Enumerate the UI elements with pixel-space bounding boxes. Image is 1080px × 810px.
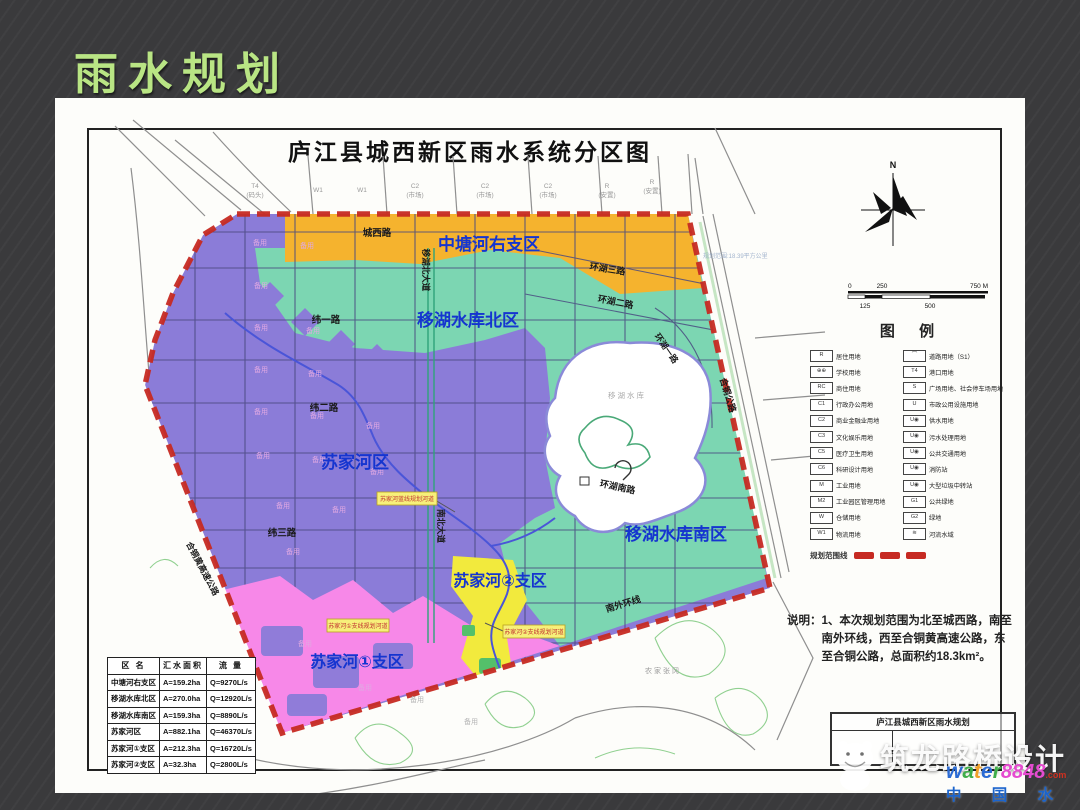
legend-swatch: ⊕⊕ xyxy=(810,366,833,378)
cell-flow: Q=12920L/s xyxy=(207,691,256,708)
reserved-outside-labels: 备用备用 xyxy=(410,695,478,726)
cell-zone-name: 移湖水库北区 xyxy=(108,691,160,708)
callout-branch1: 苏家河①支线规划河道 xyxy=(328,622,387,630)
legend-item: W 仓储用地 xyxy=(810,510,898,526)
cell-zone-name: 苏家河①支区 xyxy=(108,740,160,757)
legend-item: G1 公共绿地 xyxy=(903,494,1013,510)
legend-item: W1 物流用地 xyxy=(810,526,898,542)
note-block: 说明： 1、本次规划范围为北至城西路，南至南外环线，西至合铜黄高速公路，东至合铜… xyxy=(787,613,1015,666)
col-zone-name: 区 名 xyxy=(108,658,160,675)
legend-item: U◉ 大型垃圾中转站 xyxy=(903,478,1013,494)
legend-item-label: 市政公用设施用地 xyxy=(929,400,979,409)
legend-item: U 市政公用设施用地 xyxy=(903,397,1013,413)
svg-text:备用: 备用 xyxy=(298,639,312,648)
legend-item-label: 文化娱乐用地 xyxy=(836,433,873,442)
legend-item-label: 医疗卫生用地 xyxy=(836,449,873,458)
legend-range-line: 规划范围线 xyxy=(810,550,1014,561)
legend-item: RC 商住用地 xyxy=(810,380,898,396)
road-yihubei-ave: 移湖北大道 xyxy=(421,249,431,292)
legend-item: ⌒ 道路用地（S1） xyxy=(903,348,1013,364)
legend-item: T4 港口用地 xyxy=(903,364,1013,380)
brand-letter: e xyxy=(981,760,993,783)
legend-swatch: G1 xyxy=(903,496,926,508)
legend-swatch: ≋ xyxy=(903,528,926,540)
legend-swatch: W xyxy=(810,512,833,524)
svg-text:备用: 备用 xyxy=(276,501,290,510)
table-row: 苏家河②支区 A=32.3ha Q=2800L/s xyxy=(108,757,256,774)
road-wei3: 纬三路 xyxy=(268,527,297,539)
zone-label-yihu-south: 移湖水库南区 xyxy=(625,524,727,544)
legend-item: C6 科研设计用地 xyxy=(810,461,898,477)
cell-zone-name: 苏家河②支区 xyxy=(108,757,160,774)
huanhunan-marker xyxy=(580,477,589,485)
legend-swatch: U◉ xyxy=(903,415,926,427)
legend-swatch: S xyxy=(903,382,926,394)
legend-item-label: 消防站 xyxy=(929,465,948,474)
legend-swatch: C1 xyxy=(810,399,833,411)
svg-text:750 M: 750 M xyxy=(970,283,988,290)
range-line-label: 规划范围线 xyxy=(810,550,848,561)
note-text: 1、本次规划范围为北至城西路，南至南外环线，西至合铜黄高速公路，东至合铜公路，总… xyxy=(822,613,1016,666)
svg-text:(码头): (码头) xyxy=(246,190,263,199)
legend-item-label: 行政办公用地 xyxy=(836,400,873,409)
svg-text:(市场): (市场) xyxy=(406,190,423,199)
legend-item: C3 文化娱乐用地 xyxy=(810,429,898,445)
village-label: 农家张冈 xyxy=(645,666,681,675)
svg-text:备用: 备用 xyxy=(358,683,372,692)
legend: 图 例 R 居住用地 ⊕⊕ 学校用地 RC 商住用地 C1 行政办公用地 C2 … xyxy=(810,320,1014,561)
legend-item: M 工业用地 xyxy=(810,478,898,494)
legend-item-label: 居住用地 xyxy=(836,352,861,361)
table-row: 苏家河①支区 A=212.3ha Q=16720L/s xyxy=(108,740,256,757)
svg-text:备用: 备用 xyxy=(464,717,478,726)
zone-label-zhongtang: 中塘河右支区 xyxy=(438,234,540,254)
brand-letter: t xyxy=(974,760,981,783)
slide: 雨水规划 庐江县城西新区雨水系统分区图 xyxy=(0,0,1080,810)
svg-text:备用: 备用 xyxy=(253,238,267,247)
legend-swatch: M2 xyxy=(810,496,833,508)
legend-swatch: U xyxy=(903,399,926,411)
table-row: 移湖水库南区 A=159.3ha Q=8890L/s xyxy=(108,707,256,724)
zone-label-sujiahe1: 苏家河①支区 xyxy=(310,652,404,671)
legend-swatch: U◉ xyxy=(903,447,926,459)
svg-text:250: 250 xyxy=(877,283,888,290)
legend-item-label: 商住用地 xyxy=(836,384,861,393)
legend-item: C2 商业金融业用地 xyxy=(810,413,898,429)
legend-item: U◉ 消防站 xyxy=(903,461,1013,477)
cell-flow: Q=8890L/s xyxy=(207,707,256,724)
cell-flow: Q=9270L/s xyxy=(207,674,256,691)
road-wei1: 纬一路 xyxy=(312,314,341,326)
svg-text:R: R xyxy=(650,179,655,186)
cell-flow: Q=46370L/s xyxy=(207,724,256,741)
brand-dotcom: .com xyxy=(1045,770,1066,780)
legend-item-label: 大型垃圾中转站 xyxy=(929,481,972,490)
svg-text:W1: W1 xyxy=(357,187,367,194)
legend-swatch: W1 xyxy=(810,528,833,540)
legend-item: U◉ 污水处理用地 xyxy=(903,429,1013,445)
svg-text:备用: 备用 xyxy=(254,281,268,290)
zone-label-sujiahe2: 苏家河②支区 xyxy=(453,571,547,590)
lake: 移湖水库 xyxy=(545,342,711,532)
legend-item-label: 港口用地 xyxy=(929,368,954,377)
road-nanbei-ave: 南北大道 xyxy=(436,509,446,544)
table-row: 移湖水库北区 A=270.0ha Q=12920L/s xyxy=(108,691,256,708)
map-title: 庐江县城西新区雨水系统分区图 xyxy=(288,139,652,165)
svg-text:备用: 备用 xyxy=(254,407,268,416)
legend-swatch: RC xyxy=(810,382,833,394)
legend-item-label: 公共绿地 xyxy=(929,497,954,506)
col-flow: 流 量 xyxy=(207,658,256,675)
legend-item: R 居住用地 xyxy=(810,348,898,364)
legend-item: C5 医疗卫生用地 xyxy=(810,445,898,461)
legend-item: S 广场用地、社会停车场用地 xyxy=(903,380,1013,396)
svg-text:(市场): (市场) xyxy=(539,190,556,199)
range-note: 规划范围:18.39平方公里 xyxy=(703,252,768,260)
legend-item-label: 商业金融业用地 xyxy=(836,416,879,425)
table-row: 苏家河区 A=882.1ha Q=46370L/s xyxy=(108,724,256,741)
zone-label-sujiahe: 苏家河区 xyxy=(321,452,389,472)
svg-text:(安置): (安置) xyxy=(643,186,660,195)
legend-item-label: 公共交通用地 xyxy=(929,449,966,458)
svg-text:备用: 备用 xyxy=(306,326,320,335)
cell-zone-name: 中塘河右支区 xyxy=(108,674,160,691)
table-header-row: 区 名 汇水面积 流 量 xyxy=(108,658,256,675)
legend-swatch: U◉ xyxy=(903,463,926,475)
legend-swatch: C3 xyxy=(810,431,833,443)
legend-item-label: 物流用地 xyxy=(836,530,861,539)
legend-swatch: C6 xyxy=(810,463,833,475)
svg-text:备用: 备用 xyxy=(410,695,424,704)
note-label: 说明： xyxy=(787,613,822,666)
svg-text:备用: 备用 xyxy=(300,241,314,250)
legend-item-label: 科研设计用地 xyxy=(836,465,873,474)
callout-branch2: 苏家河②支线规划河道 xyxy=(504,628,563,636)
legend-item: C1 行政办公用地 xyxy=(810,397,898,413)
legend-item-label: 工业用地 xyxy=(836,481,861,490)
legend-item-label: 广场用地、社会停车场用地 xyxy=(929,384,1003,393)
cell-area: A=159.3ha xyxy=(160,707,207,724)
brand-number: 8848 xyxy=(1001,761,1046,783)
red-dash-icon xyxy=(880,552,900,559)
svg-text:备用: 备用 xyxy=(256,451,270,460)
svg-text:备用: 备用 xyxy=(286,547,300,556)
cell-zone-name: 苏家河区 xyxy=(108,724,160,741)
red-dash-icon xyxy=(906,552,926,559)
legend-left-column: R 居住用地 ⊕⊕ 学校用地 RC 商住用地 C1 行政办公用地 C2 商业金融… xyxy=(810,348,898,542)
svg-text:C2: C2 xyxy=(544,183,553,190)
legend-item-label: 污水处理用地 xyxy=(929,433,966,442)
watermark-cn: 中 国 水 业 网 xyxy=(946,783,1080,805)
road-wei2: 纬二路 xyxy=(310,402,339,414)
svg-text:(安置): (安置) xyxy=(598,190,615,199)
legend-item-label: 仓储用地 xyxy=(836,513,861,522)
cell-area: A=270.0ha xyxy=(160,691,207,708)
svg-text:W1: W1 xyxy=(313,187,323,194)
road-chengxi: 城西路 xyxy=(363,227,392,239)
table-row: 中塘河右支区 A=159.2ha Q=9270L/s xyxy=(108,674,256,691)
svg-text:备用: 备用 xyxy=(254,323,268,332)
drawing-title: 庐江县城西新区雨水规划 xyxy=(832,714,1014,731)
legend-swatch: ⌒ xyxy=(903,350,926,362)
legend-swatch: T4 xyxy=(903,366,926,378)
cell-area: A=32.3ha xyxy=(160,757,207,774)
legend-title: 图 例 xyxy=(810,320,1014,341)
cell-area: A=882.1ha xyxy=(160,724,207,741)
callout-blue-line: 苏家河蓝线规划河道 xyxy=(380,495,434,503)
legend-swatch: U◉ xyxy=(903,480,926,492)
legend-item-label: 绿地 xyxy=(929,513,941,522)
legend-swatch: G2 xyxy=(903,512,926,524)
cell-zone-name: 移湖水库南区 xyxy=(108,707,160,724)
svg-text:备用: 备用 xyxy=(332,505,346,514)
north-arrow: N xyxy=(861,160,925,246)
legend-item: U◉ 公共交通用地 xyxy=(903,445,1013,461)
brand-letter: a xyxy=(962,760,974,783)
page-title: 雨水规划 xyxy=(74,38,290,102)
hippo-logo-icon xyxy=(830,738,880,792)
svg-text:500: 500 xyxy=(925,303,936,310)
legend-swatch: M xyxy=(810,480,833,492)
zone-label-yihu-north: 移湖水库北区 xyxy=(417,310,519,330)
legend-right-column: ⌒ 道路用地（S1） T4 港口用地 S 广场用地、社会停车场用地 U 市政公用… xyxy=(903,348,1013,542)
legend-swatch: U◉ xyxy=(903,431,926,443)
cell-flow: Q=2800L/s xyxy=(207,757,256,774)
svg-text:0: 0 xyxy=(848,283,852,290)
legend-item: M2 工业园区管理用地 xyxy=(810,494,898,510)
legend-item-label: 工业园区管理用地 xyxy=(836,497,886,506)
svg-text:125: 125 xyxy=(860,303,871,310)
legend-item-label: 学校用地 xyxy=(836,368,861,377)
red-dash-icon xyxy=(854,552,874,559)
legend-item-label: 河流水域 xyxy=(929,530,954,539)
outside-parcel-labels: T4(码头) W1 W1 C2(市场) C2(市场) C2(市场) R(安置) … xyxy=(246,179,660,199)
watermark-brand: water8848.com xyxy=(946,760,1066,784)
legend-swatch: C2 xyxy=(810,415,833,427)
svg-text:备用: 备用 xyxy=(366,421,380,430)
zone-table: 区 名 汇水面积 流 量 中塘河右支区 A=159.2ha Q=9270L/s … xyxy=(107,657,256,774)
legend-item-label: 供水用地 xyxy=(929,416,954,425)
svg-text:T4: T4 xyxy=(251,183,259,190)
legend-item-label: 道路用地（S1） xyxy=(929,352,974,361)
legend-swatch: C5 xyxy=(810,447,833,459)
north-letter: N xyxy=(890,160,897,170)
svg-text:备用: 备用 xyxy=(308,369,322,378)
svg-text:C2: C2 xyxy=(411,183,420,190)
legend-swatch: R xyxy=(810,350,833,362)
legend-item: ⊕⊕ 学校用地 xyxy=(810,364,898,380)
lake-label: 移湖水库 xyxy=(608,390,646,400)
legend-item: G2 绿地 xyxy=(903,510,1013,526)
cell-area: A=159.2ha xyxy=(160,674,207,691)
scale-bar: 0 250 750 M 125 500 xyxy=(848,283,988,310)
svg-text:(市场): (市场) xyxy=(476,190,493,199)
legend-item: U◉ 供水用地 xyxy=(903,413,1013,429)
svg-text:R: R xyxy=(605,183,610,190)
cell-area: A=212.3ha xyxy=(160,740,207,757)
col-catchment-area: 汇水面积 xyxy=(160,658,207,675)
brand-letter: w xyxy=(946,760,962,783)
legend-item: ≋ 河流水域 xyxy=(903,526,1013,542)
cell-flow: Q=16720L/s xyxy=(207,740,256,757)
brand-letter: r xyxy=(993,760,1001,783)
svg-text:备用: 备用 xyxy=(254,365,268,374)
svg-text:C2: C2 xyxy=(481,183,490,190)
